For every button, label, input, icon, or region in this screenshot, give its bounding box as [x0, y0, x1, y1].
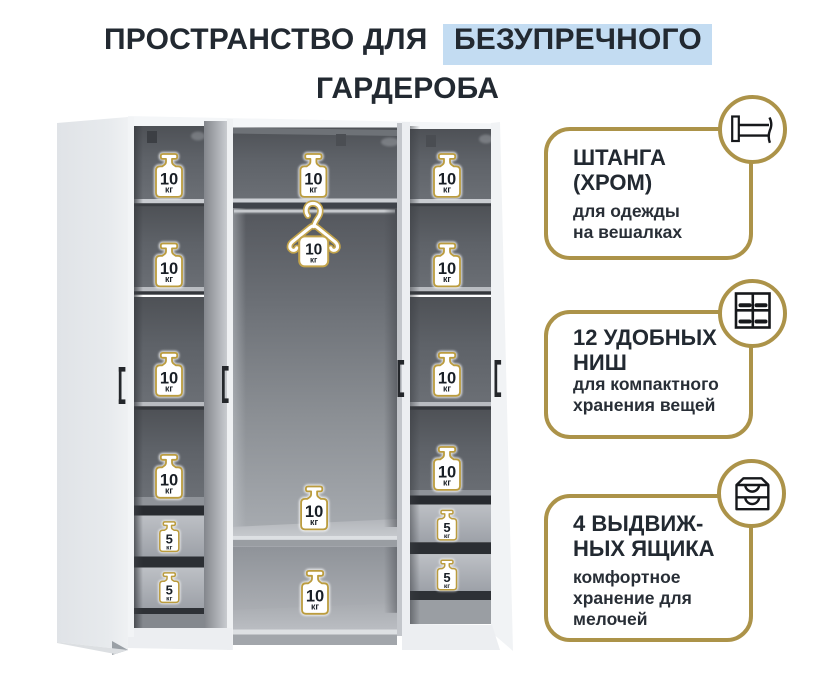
svg-text:кг: кг — [310, 256, 318, 265]
